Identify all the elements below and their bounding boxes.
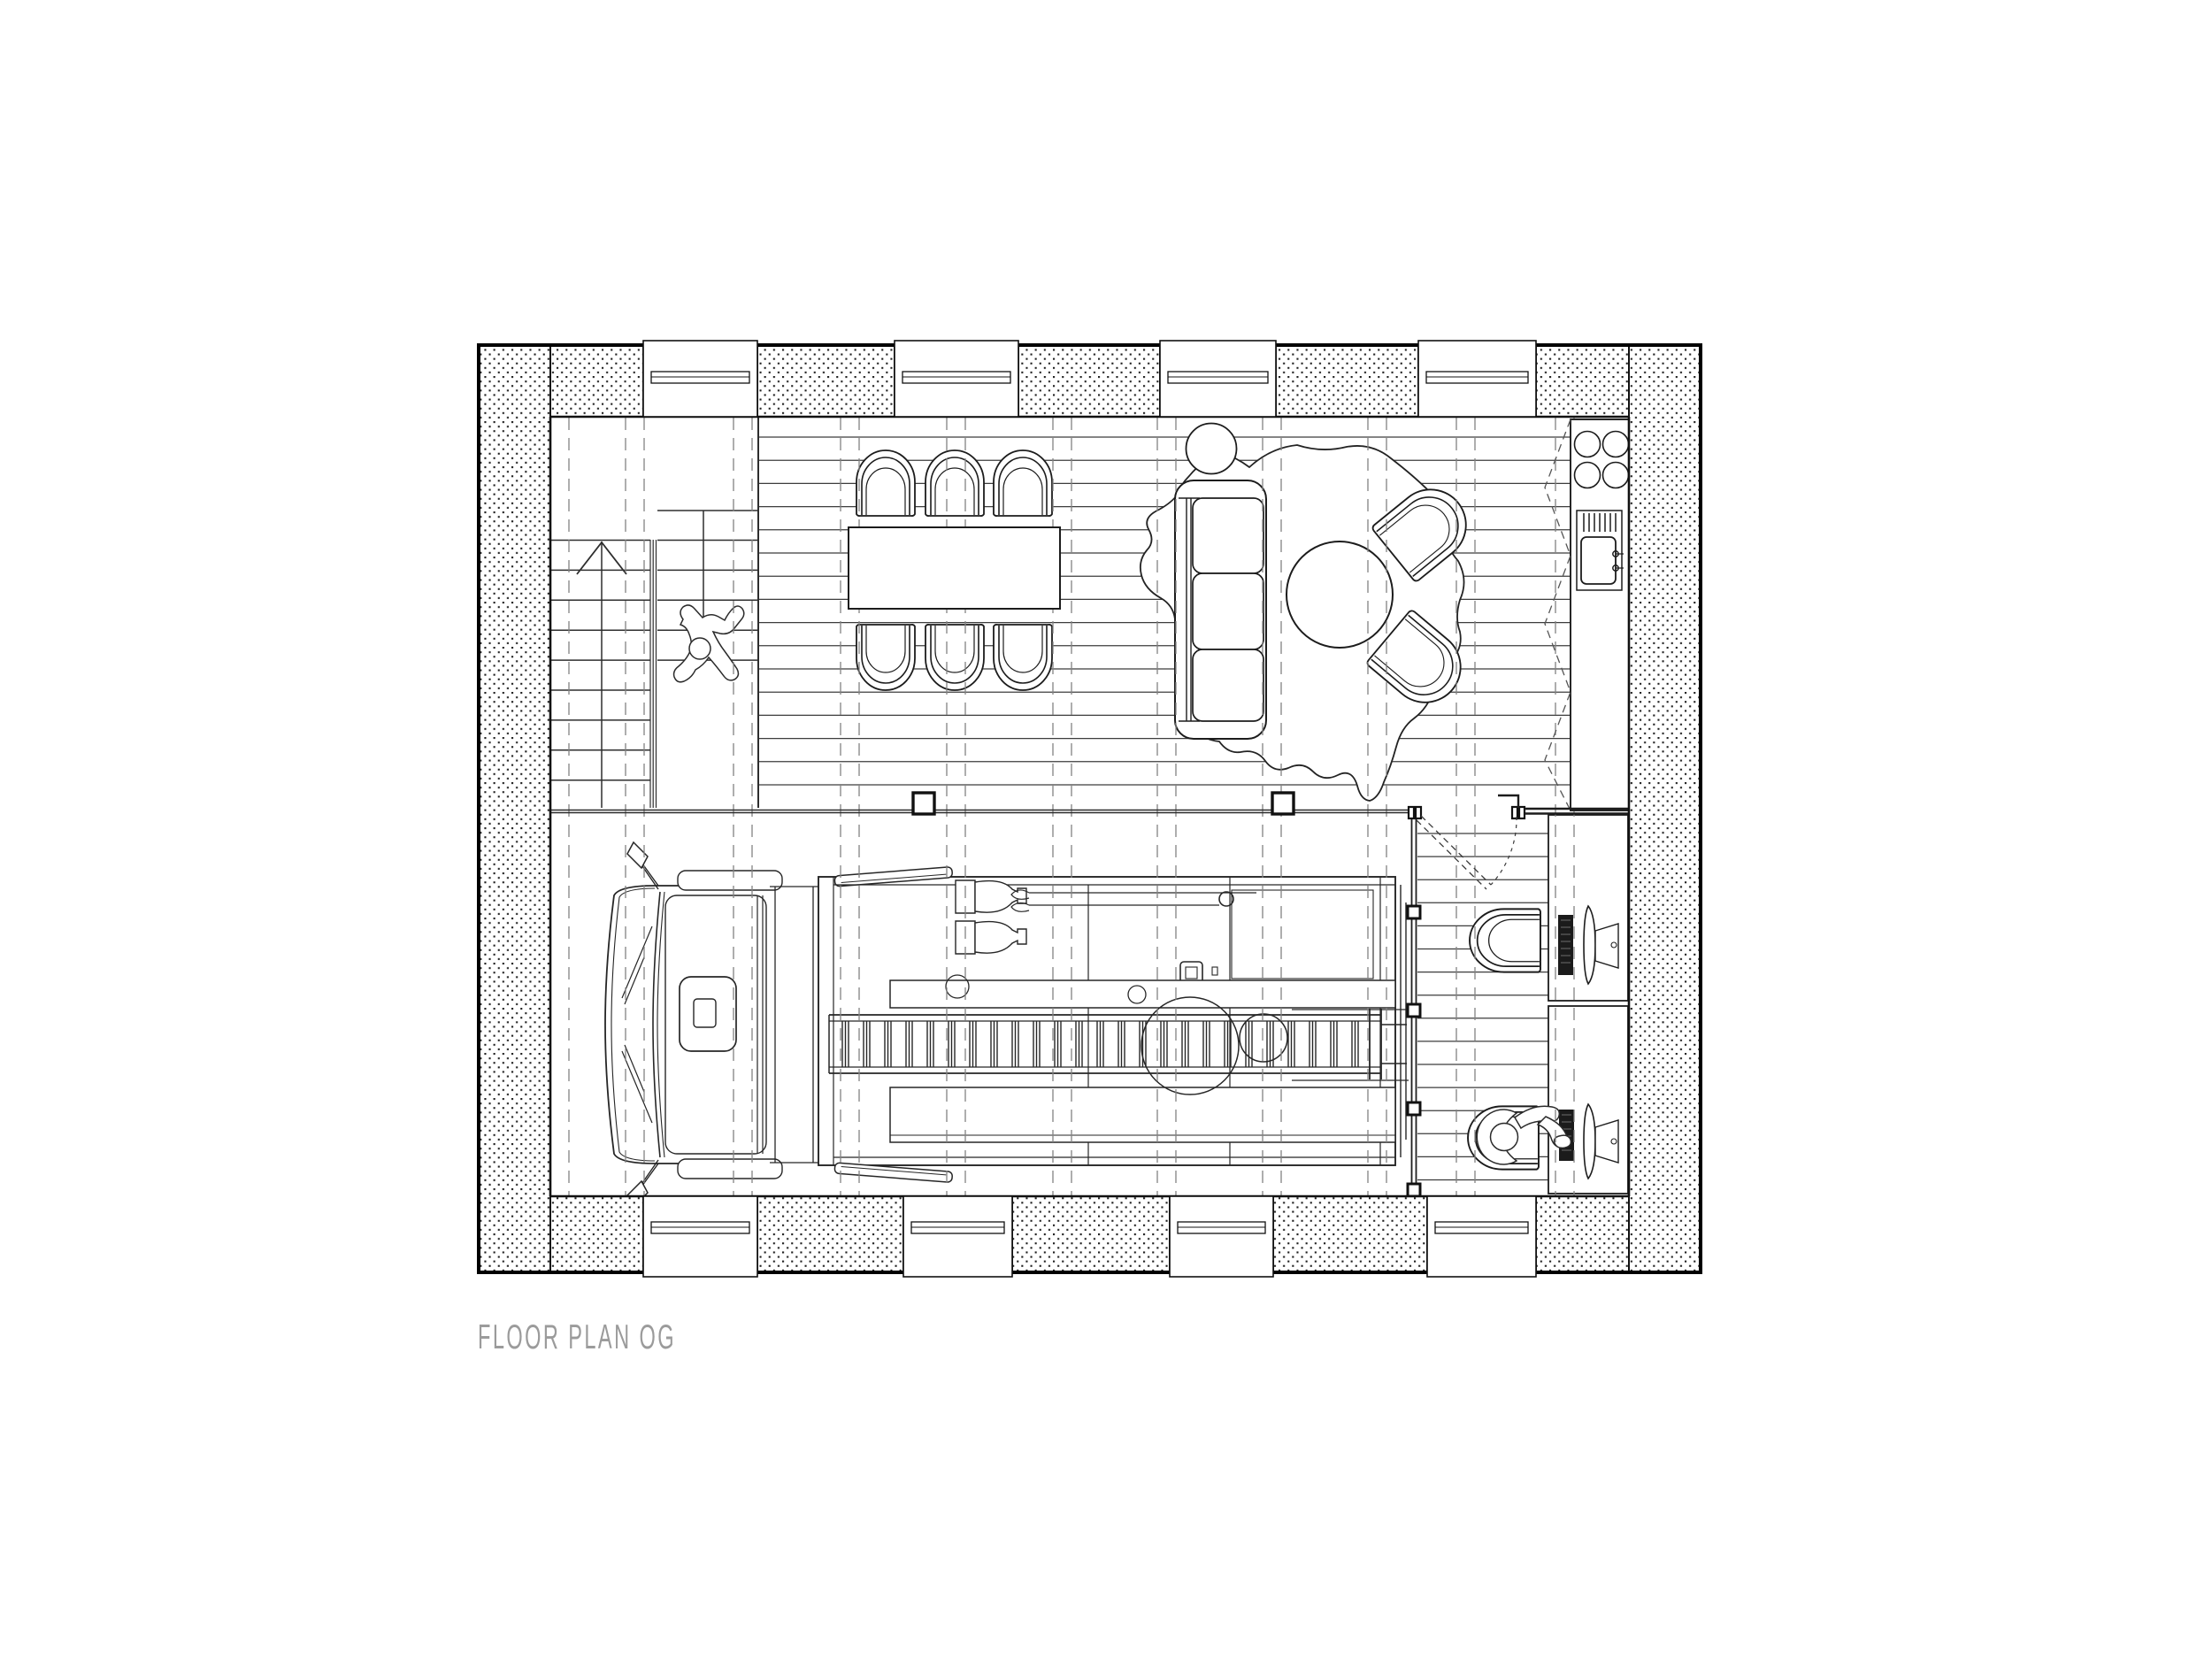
- svg-text:FLOOR PLAN OG: FLOOR PLAN OG: [478, 1318, 676, 1356]
